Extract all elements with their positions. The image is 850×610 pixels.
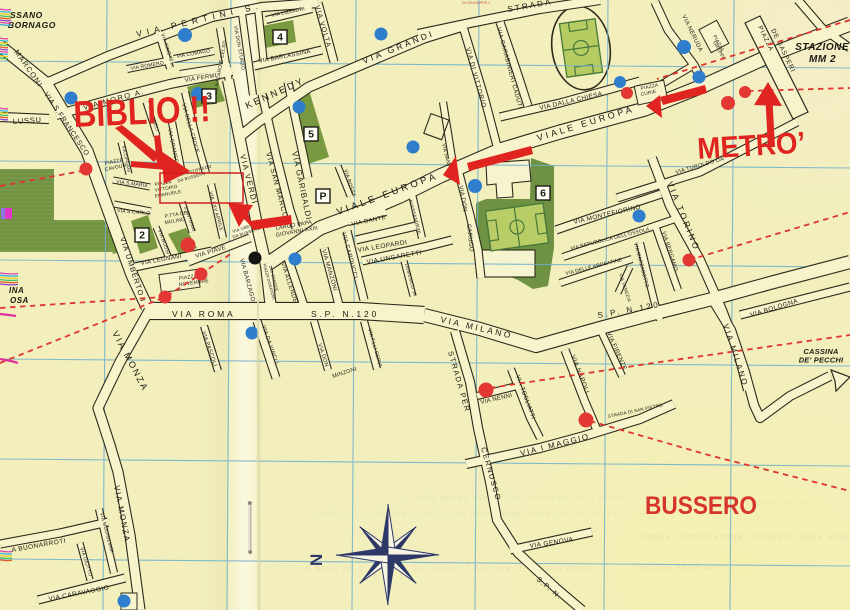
svg-text:CASSINA: CASSINA: [803, 347, 838, 356]
svg-text:li ema asnoc ocra elled emoiza: li ema asnoc ocra elled emoizats enif ot…: [405, 493, 627, 502]
svg-text:itnedar, inoisnamrep inortasle: itnedar, inoisnamrep inortasle iaune ota…: [640, 532, 850, 541]
svg-text:METRO’: METRO’: [696, 126, 806, 166]
svg-text:VIA ROMA: VIA ROMA: [172, 309, 236, 319]
svg-text:4: 4: [277, 32, 283, 44]
svg-text:eroita lus otel ma onretni led: eroita lus otel ma onretni led otre otnu…: [318, 509, 619, 518]
svg-text:SSANO: SSANO: [10, 10, 43, 20]
svg-text:STAZIONE: STAZIONE: [795, 42, 849, 53]
svg-text:DE' PECCHI: DE' PECCHI: [799, 356, 844, 365]
svg-text:S.P. N.120: S.P. N.120: [311, 309, 379, 319]
svg-text:5: 5: [308, 129, 314, 141]
svg-text:INA: INA: [9, 286, 24, 295]
svg-text:eroilet sape aloz: eroilet sape aloz: [640, 563, 725, 572]
svg-text:DI GIUSEPPE L: DI GIUSEPPE L: [462, 1, 491, 5]
svg-text:BIBLIO !!: BIBLIO !!: [73, 88, 212, 135]
svg-text:2: 2: [139, 230, 145, 242]
svg-text:aicr am len: aicr am len: [758, 498, 815, 507]
svg-text:BORNAGO: BORNAGO: [8, 20, 56, 30]
svg-text:OSA: OSA: [10, 296, 29, 305]
svg-text:P: P: [319, 191, 326, 203]
svg-text:BUSSERO: BUSSERO: [645, 492, 757, 520]
svg-text:6: 6: [540, 188, 546, 200]
svg-text:MM 2: MM 2: [809, 54, 836, 65]
svg-text:N: N: [307, 554, 326, 566]
svg-text:o SteS no a f.Oe I a.So, iaens: o SteS no a f.Oe I a.So, iaens, f.SO j.o…: [305, 564, 592, 573]
